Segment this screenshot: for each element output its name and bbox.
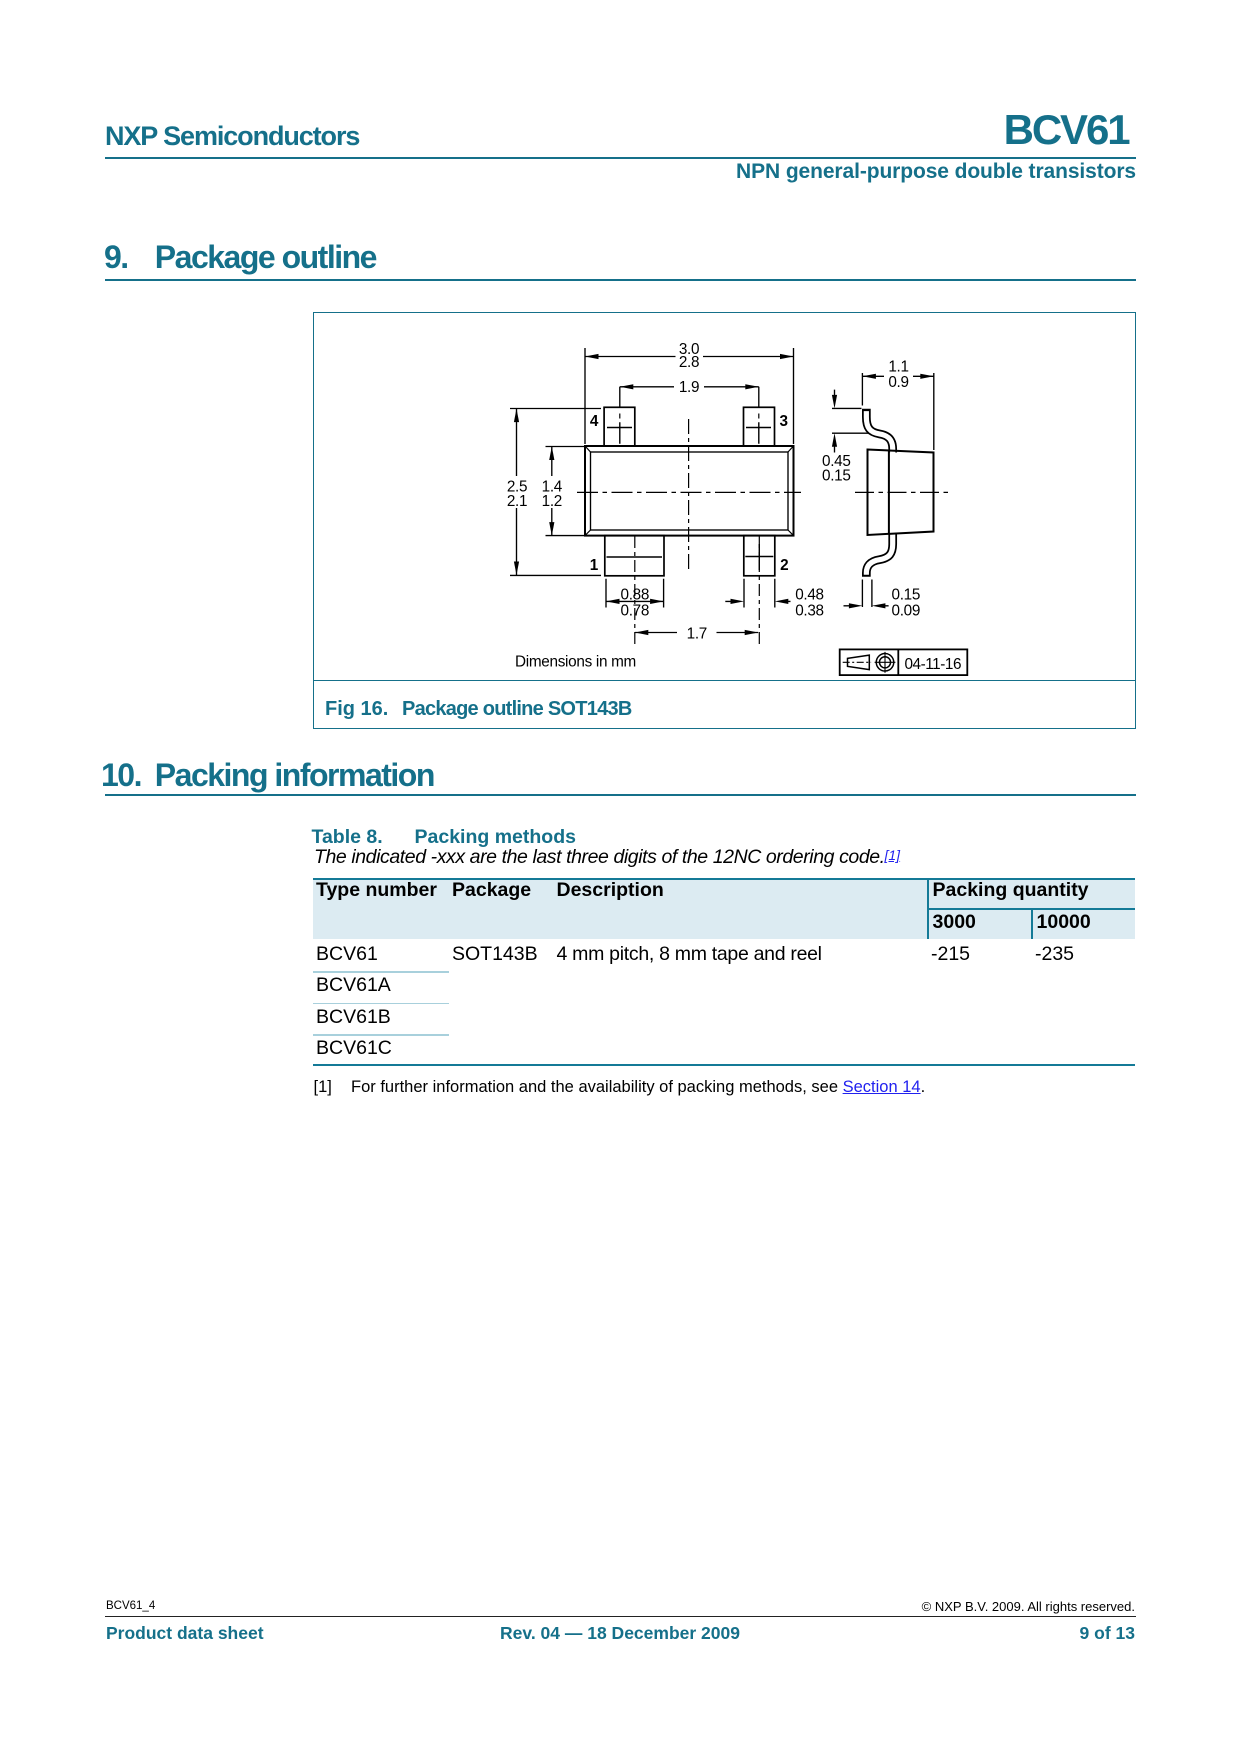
svg-text:04-11-16: 04-11-16 bbox=[905, 656, 962, 673]
svg-text:1.7: 1.7 bbox=[687, 625, 707, 642]
svg-text:2: 2 bbox=[780, 557, 788, 574]
svg-text:0.15: 0.15 bbox=[822, 467, 851, 484]
svg-text:1.2: 1.2 bbox=[542, 493, 562, 510]
svg-text:0.38: 0.38 bbox=[795, 602, 824, 619]
svg-text:1.1: 1.1 bbox=[888, 358, 908, 375]
svg-text:0.15: 0.15 bbox=[892, 587, 921, 604]
svg-text:2.1: 2.1 bbox=[507, 493, 527, 510]
svg-text:0.88: 0.88 bbox=[621, 587, 650, 604]
svg-text:1.9: 1.9 bbox=[679, 379, 699, 396]
svg-text:0.78: 0.78 bbox=[621, 602, 650, 619]
svg-text:2.8: 2.8 bbox=[679, 354, 699, 371]
svg-text:0.9: 0.9 bbox=[888, 374, 908, 391]
svg-text:Dimensions in mm: Dimensions in mm bbox=[515, 653, 636, 670]
svg-text:3: 3 bbox=[779, 413, 787, 430]
svg-text:0.48: 0.48 bbox=[795, 587, 824, 604]
svg-text:4: 4 bbox=[590, 413, 599, 430]
svg-text:1: 1 bbox=[590, 557, 599, 574]
svg-text:0.09: 0.09 bbox=[892, 602, 921, 619]
